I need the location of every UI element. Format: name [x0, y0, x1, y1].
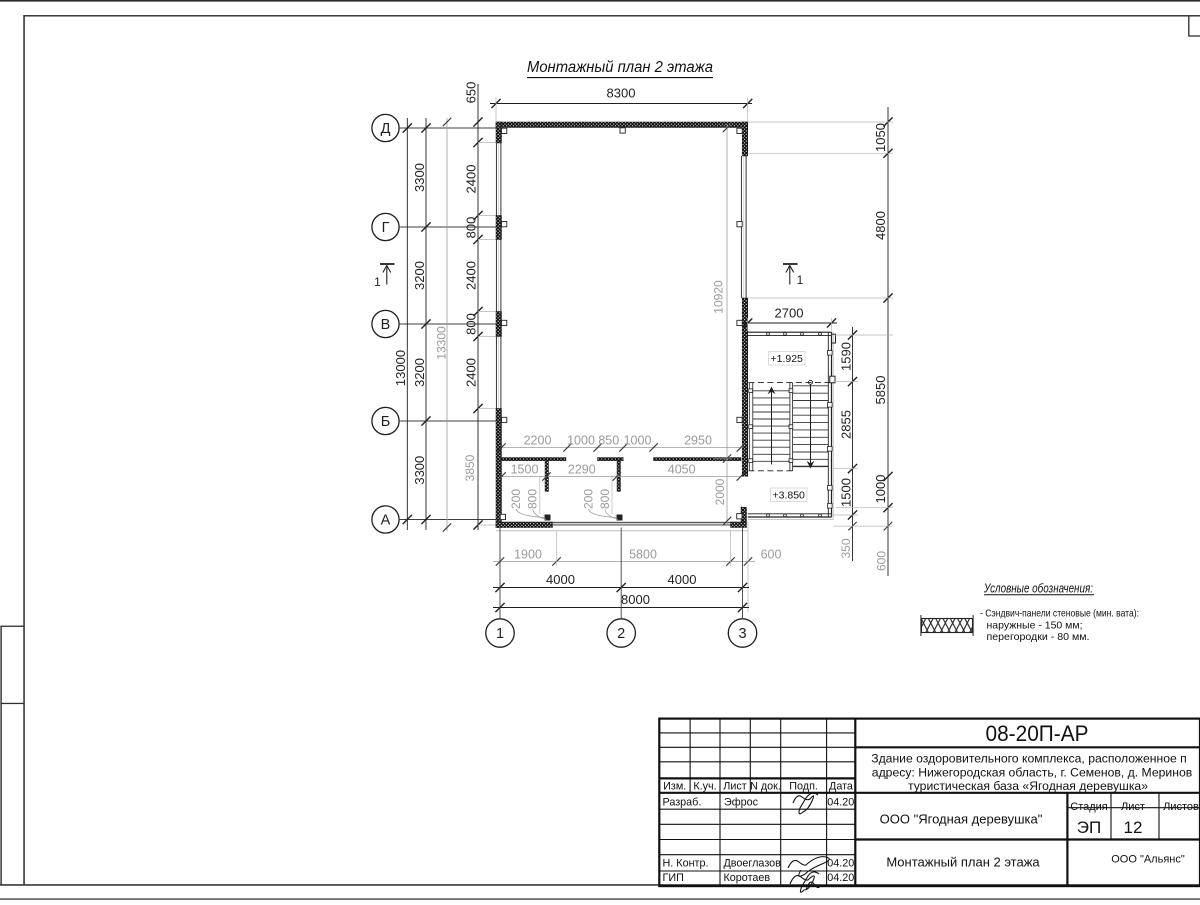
svg-text:1590: 1590 [839, 342, 854, 371]
svg-text:Листов: Листов [1163, 801, 1199, 813]
svg-text:Коротаев: Коротаев [724, 872, 771, 884]
svg-text:ГИП: ГИП [663, 872, 684, 884]
svg-text:200: 200 [581, 489, 595, 509]
svg-text:В: В [381, 317, 391, 333]
svg-text:3200: 3200 [412, 358, 427, 387]
svg-text:Стадия: Стадия [1070, 801, 1108, 813]
svg-text:- Сэндвич-панели стеновые (мин: - Сэндвич-панели стеновые (мин. вата): [980, 608, 1139, 620]
svg-text:13300: 13300 [435, 326, 449, 360]
svg-text:Двоеглазов: Двоеглазов [724, 858, 782, 870]
svg-text:4000: 4000 [546, 572, 575, 587]
svg-text:Б: Б [381, 414, 391, 430]
svg-text:Монтажный план 2 этажа: Монтажный план 2 этажа [527, 59, 713, 76]
svg-text:1900: 1900 [514, 547, 542, 561]
svg-text:наружные - 150 мм;: наружные - 150 мм; [987, 619, 1083, 631]
svg-text:2290: 2290 [568, 462, 596, 476]
svg-text:ООО "Ягодная деревушка": ООО "Ягодная деревушка" [880, 812, 1043, 827]
svg-text:04.20: 04.20 [827, 796, 854, 808]
svg-text:1000: 1000 [873, 475, 888, 504]
svg-text:перегородки - 80 мм.: перегородки - 80 мм. [987, 631, 1090, 643]
svg-text:800: 800 [464, 217, 479, 239]
svg-text:3200: 3200 [412, 261, 427, 290]
svg-text:адресу: Нижегородская область,: адресу: Нижегородская область, г. Семено… [872, 765, 1192, 779]
svg-text:Здание оздоровительного компле: Здание оздоровительного комплекса, распо… [871, 752, 1187, 766]
svg-text:2855: 2855 [839, 410, 854, 439]
svg-text:Лист: Лист [1121, 801, 1145, 813]
svg-text:600: 600 [761, 547, 782, 561]
svg-text:3850: 3850 [463, 454, 477, 481]
svg-text:К.уч.: К.уч. [693, 780, 716, 792]
svg-text:4000: 4000 [668, 572, 697, 587]
svg-text:1000: 1000 [567, 433, 595, 447]
svg-text:04.20: 04.20 [827, 858, 854, 870]
svg-text:350: 350 [839, 538, 853, 558]
svg-text:2400: 2400 [464, 261, 479, 290]
svg-text:Монтажный план 2 этажа: Монтажный план 2 этажа [886, 855, 1040, 870]
svg-text:Лист: Лист [723, 780, 747, 792]
svg-text:1: 1 [496, 626, 504, 642]
svg-text:Н. Контр.: Н. Контр. [663, 858, 709, 870]
svg-text:Изм.: Изм. [663, 780, 686, 792]
svg-text:2400: 2400 [464, 358, 479, 387]
svg-text:1: 1 [374, 275, 381, 289]
svg-text:N док.: N док. [750, 780, 781, 792]
svg-text:+3.850: +3.850 [772, 489, 805, 501]
svg-text:10920: 10920 [712, 280, 726, 314]
svg-text:4800: 4800 [873, 211, 888, 240]
svg-text:ООО "Альянс": ООО "Альянс" [1111, 854, 1185, 866]
svg-text:2950: 2950 [684, 433, 712, 447]
svg-text:1050: 1050 [873, 123, 888, 152]
svg-text:12: 12 [1124, 818, 1143, 837]
svg-text:2400: 2400 [464, 165, 479, 194]
svg-text:2000: 2000 [713, 478, 727, 505]
svg-text:ЭП: ЭП [1077, 818, 1101, 837]
svg-text:04.20: 04.20 [827, 872, 854, 884]
svg-text:А: А [381, 513, 391, 529]
svg-text:4050: 4050 [668, 462, 696, 476]
svg-text:Подп.: Подп. [789, 780, 818, 792]
svg-text:08-20П-АР: 08-20П-АР [986, 721, 1089, 746]
svg-text:2700: 2700 [775, 306, 804, 321]
svg-text:850: 850 [598, 433, 619, 447]
svg-text:13000: 13000 [393, 350, 408, 386]
svg-text:200: 200 [509, 489, 523, 509]
svg-text:1000: 1000 [624, 433, 652, 447]
svg-text:3: 3 [738, 626, 746, 642]
svg-text:1500: 1500 [511, 462, 539, 476]
svg-text:Разраб.: Разраб. [663, 796, 702, 808]
svg-text:5850: 5850 [873, 376, 888, 405]
svg-text:Д: Д [381, 121, 391, 137]
svg-text:туристическая база «Ягодная де: туристическая база «Ягодная деревушка» [908, 779, 1148, 793]
svg-text:Эфрос: Эфрос [724, 796, 759, 808]
svg-text:800: 800 [598, 489, 612, 509]
svg-text:5800: 5800 [629, 547, 657, 561]
svg-text:8000: 8000 [621, 592, 650, 607]
svg-text:8300: 8300 [607, 86, 636, 101]
svg-text:Условные обозначения:: Условные обозначения: [983, 581, 1093, 595]
svg-text:1: 1 [797, 273, 804, 287]
svg-text:800: 800 [464, 313, 479, 335]
svg-text:650: 650 [464, 82, 479, 104]
svg-text:+1.925: +1.925 [770, 353, 803, 365]
svg-text:1500: 1500 [839, 478, 854, 507]
svg-text:800: 800 [526, 489, 540, 509]
svg-text:600: 600 [875, 551, 889, 571]
svg-text:Дата: Дата [829, 780, 853, 792]
svg-text:Г: Г [382, 220, 390, 236]
svg-text:3300: 3300 [412, 456, 427, 485]
svg-text:2200: 2200 [524, 433, 552, 447]
svg-text:2: 2 [617, 626, 625, 642]
svg-text:3300: 3300 [412, 163, 427, 192]
